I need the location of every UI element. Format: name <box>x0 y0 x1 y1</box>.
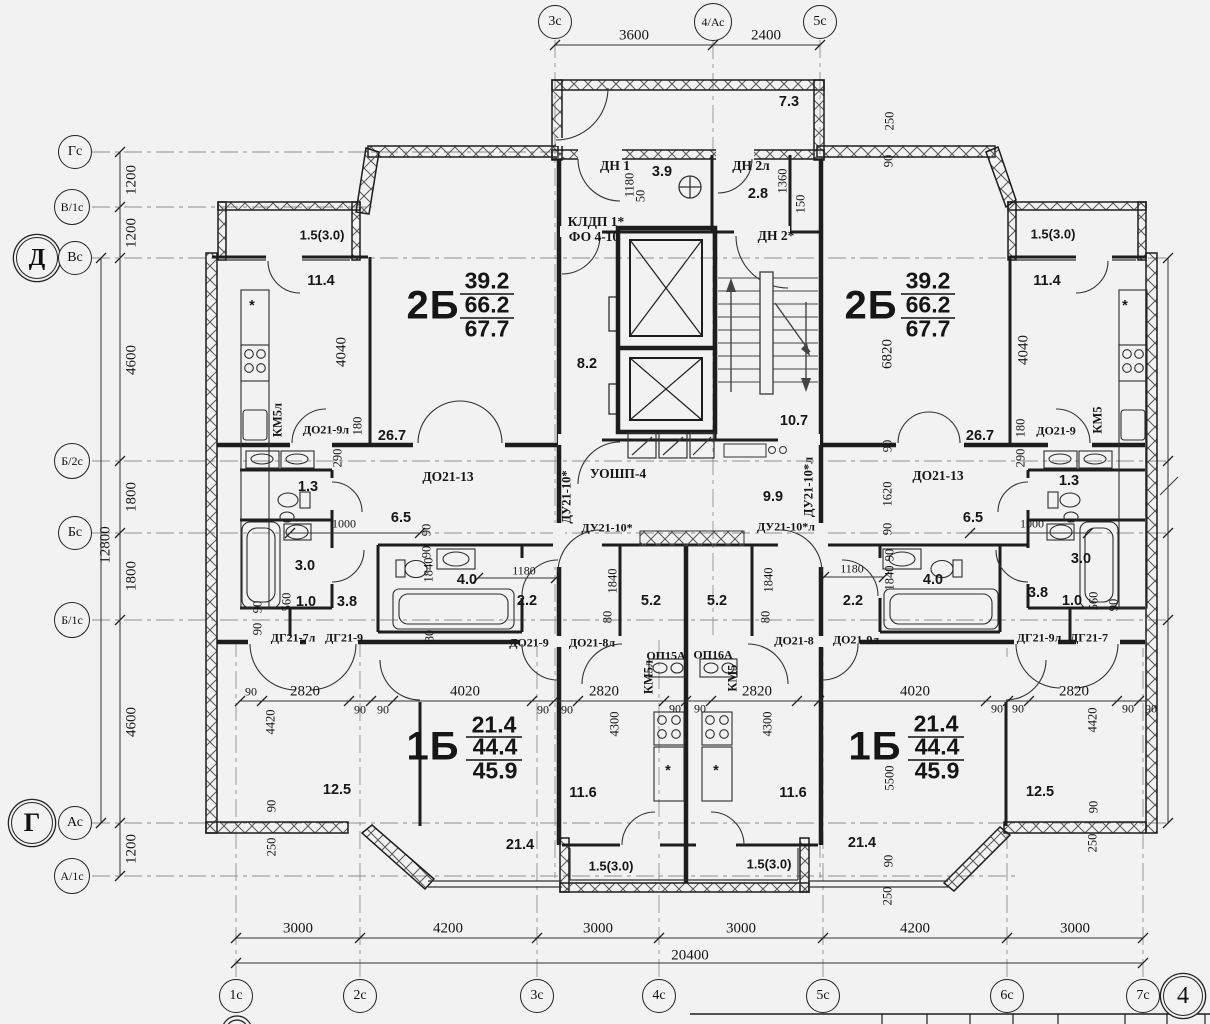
staircase <box>718 272 818 394</box>
plan-drawing <box>0 0 1210 1024</box>
elevator-shafts <box>609 228 715 432</box>
exterior-walls <box>206 80 1157 892</box>
area-fraction-lines <box>460 294 964 760</box>
floor-plan-sheet: 3с4/Ас5сГсВ/1сДВсБ/2сБсБ/1сГАсА/1с1с2с3с… <box>0 0 1210 1024</box>
title-block <box>222 1014 1210 1024</box>
interior-walls <box>212 155 1146 887</box>
